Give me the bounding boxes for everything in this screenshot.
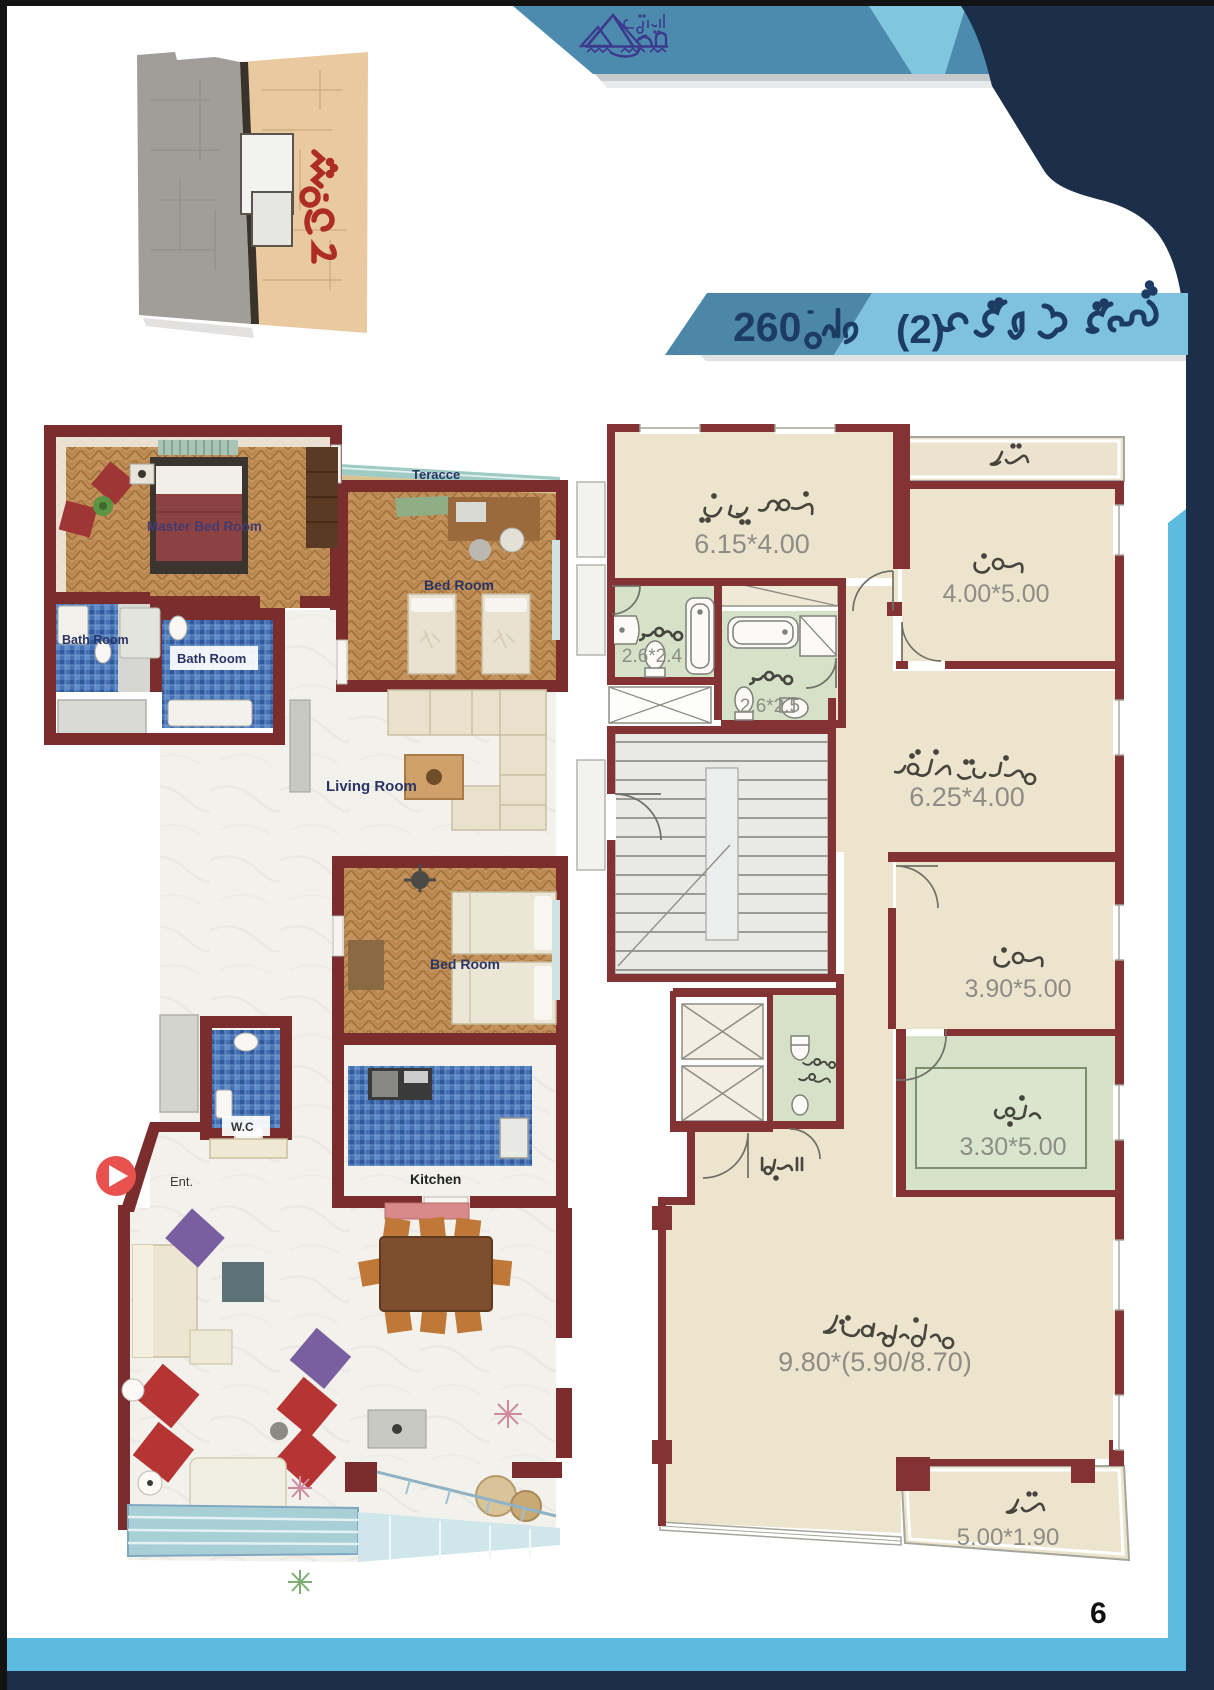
svg-text:Master Bed Room: Master Bed Room: [147, 519, 262, 534]
svg-text:Bath Room: Bath Room: [177, 651, 246, 666]
svg-text:4.00*5.00: 4.00*5.00: [942, 580, 1049, 608]
svg-text:3.30*5.00: 3.30*5.00: [959, 1133, 1066, 1161]
svg-text:W.C: W.C: [231, 1120, 254, 1134]
svg-text:9.80*(5.90/8.70): 9.80*(5.90/8.70): [778, 1347, 972, 1377]
svg-text:(2): (2): [896, 308, 945, 352]
svg-text:Bed Room: Bed Room: [430, 956, 500, 972]
svg-text:6: 6: [1090, 1597, 1107, 1630]
svg-text:3.90*5.00: 3.90*5.00: [964, 975, 1071, 1003]
svg-text:Bed Room: Bed Room: [424, 577, 494, 593]
svg-text:Living Room: Living Room: [326, 778, 417, 795]
svg-text:Teracce: Teracce: [412, 467, 460, 482]
svg-text:Bath Room: Bath Room: [62, 633, 129, 647]
svg-text:6.25*4.00: 6.25*4.00: [909, 782, 1025, 812]
svg-text:260: 260: [733, 304, 801, 350]
svg-text:2.6*2.5: 2.6*2.5: [740, 696, 800, 717]
svg-text:Kitchen: Kitchen: [410, 1171, 461, 1187]
svg-text:6.15*4.00: 6.15*4.00: [694, 529, 810, 559]
svg-text:2.6*2.4: 2.6*2.4: [622, 646, 683, 667]
svg-text:Ent.: Ent.: [170, 1174, 193, 1189]
svg-text:5.00*1.90: 5.00*1.90: [957, 1524, 1060, 1551]
